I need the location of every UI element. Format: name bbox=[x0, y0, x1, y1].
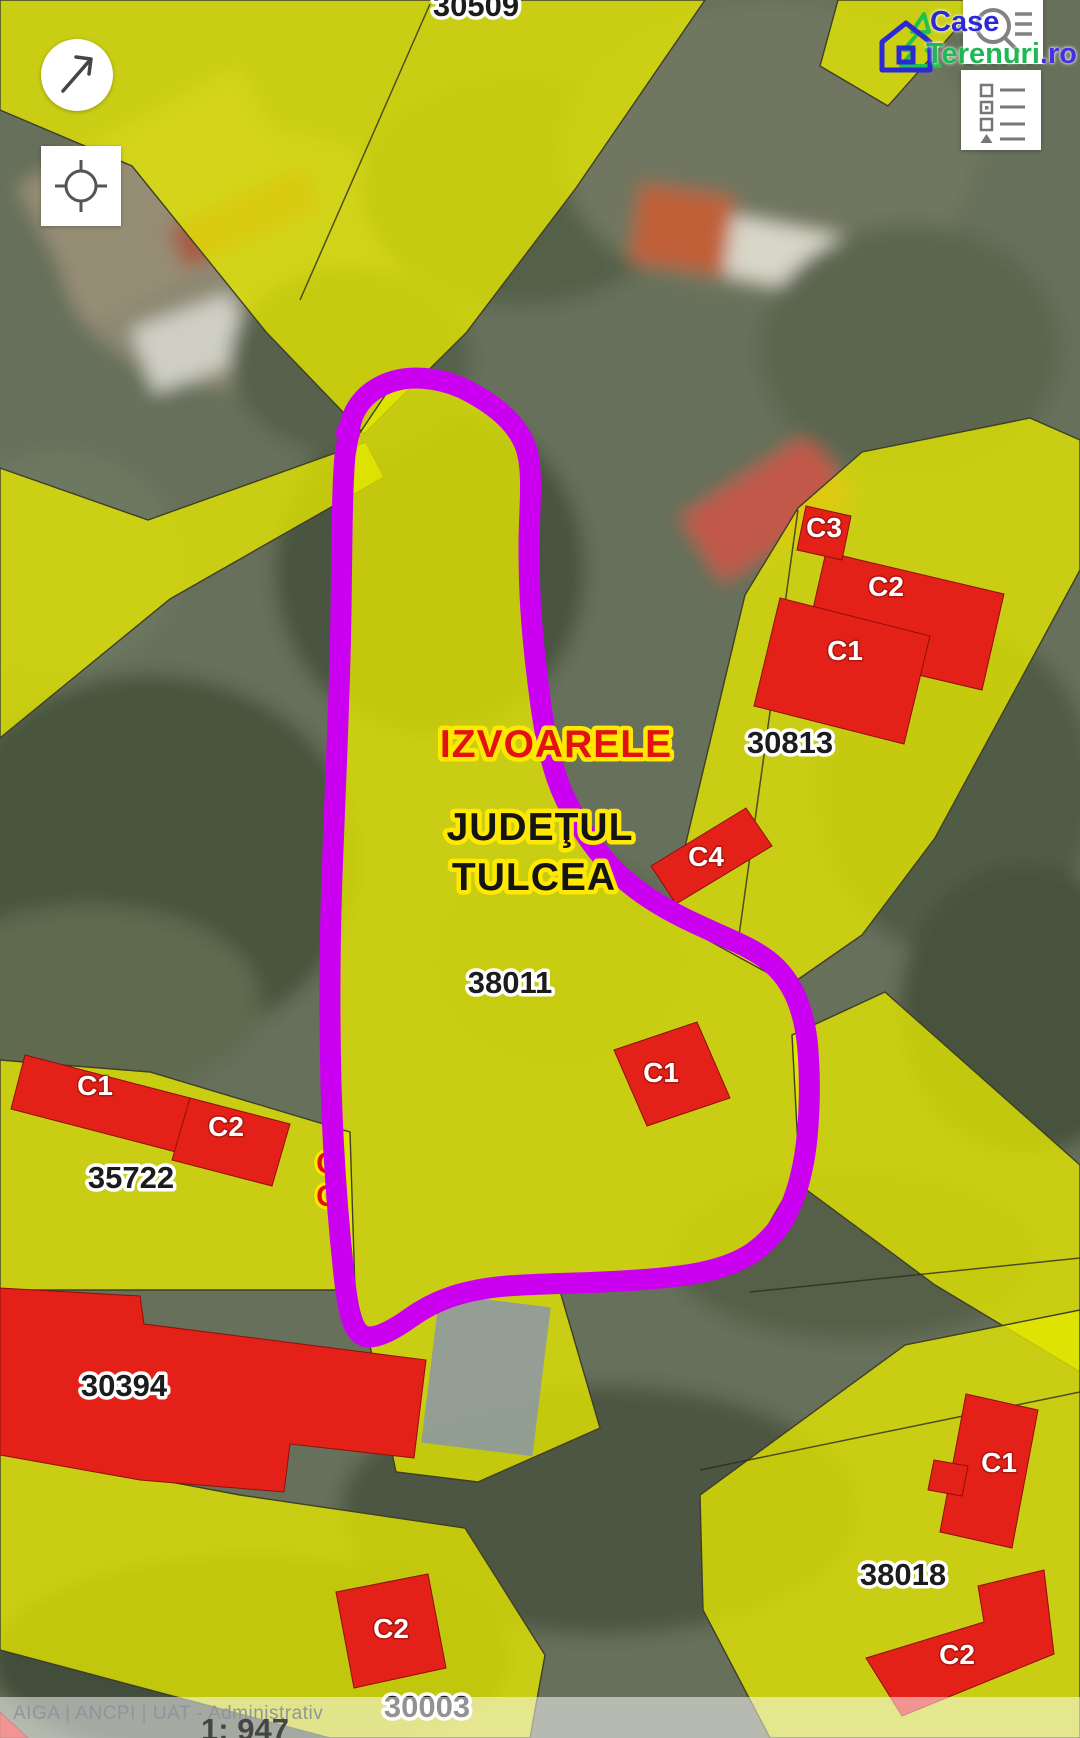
parcel-label-35722: 35722 bbox=[88, 1160, 174, 1195]
building-label-c2-west: C2 bbox=[208, 1111, 244, 1142]
parcel-label-30813: 30813 bbox=[747, 725, 833, 760]
map-viewer: C C 30509 IZVOARELE JUDEŢUL TULCEA 38011… bbox=[0, 0, 1080, 1738]
satellite-building bbox=[421, 1294, 550, 1457]
north-east-arrow-icon bbox=[41, 39, 113, 111]
town-label: IZVOARELE bbox=[440, 723, 672, 766]
building-c1-southeast-annex[interactable] bbox=[928, 1460, 968, 1496]
county-label-line1: JUDEŢUL bbox=[447, 806, 634, 849]
building-label-c3: C3 bbox=[806, 512, 842, 543]
parcel-label-30394: 30394 bbox=[81, 1368, 168, 1403]
layers-button[interactable] bbox=[961, 70, 1041, 150]
building-label-c2-south: C2 bbox=[373, 1613, 409, 1644]
brand-logo[interactable]: Case Terenuri.ro bbox=[872, 6, 1080, 80]
map-scale: 1: 947 bbox=[0, 1712, 490, 1738]
building-label-c2-southeast: C2 bbox=[939, 1639, 975, 1670]
compass-button[interactable] bbox=[41, 39, 113, 111]
county-label-line2: TULCEA bbox=[452, 856, 616, 899]
building-label-c2-northeast: C2 bbox=[868, 571, 904, 602]
legend-list-icon bbox=[961, 70, 1041, 150]
parcel-label-38018: 38018 bbox=[860, 1557, 946, 1592]
building-label-c1-northeast: C1 bbox=[827, 635, 863, 666]
parcel-label-30509: 30509 bbox=[433, 0, 519, 23]
locate-button[interactable] bbox=[41, 146, 121, 226]
brand-name-part2: Terenuri bbox=[926, 38, 1040, 70]
map-canvas[interactable]: C C 30509 IZVOARELE JUDEŢUL TULCEA 38011… bbox=[0, 0, 1080, 1738]
building-label-c1-west: C1 bbox=[77, 1070, 113, 1101]
building-label-c1-southeast: C1 bbox=[981, 1447, 1017, 1478]
brand-name-part1: Case bbox=[930, 6, 999, 38]
building-label-c1-central: C1 bbox=[643, 1057, 679, 1088]
parcel-label-38011: 38011 bbox=[468, 965, 553, 1000]
crosshair-icon bbox=[41, 146, 121, 226]
brand-tld: .ro bbox=[1040, 38, 1077, 70]
building-label-c4: C4 bbox=[688, 841, 724, 872]
